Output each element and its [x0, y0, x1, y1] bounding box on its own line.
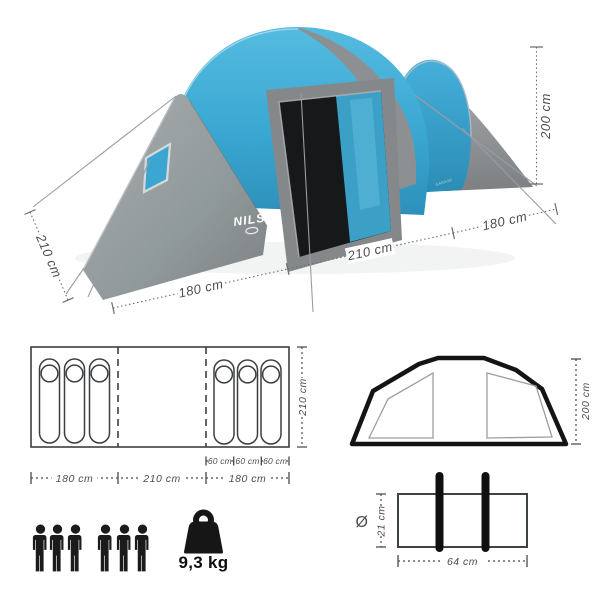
photo-dim-front-right: 180 cm: [451, 201, 558, 241]
pack-bag-outline: [398, 494, 527, 547]
plan-dim-beds: 60 cm 60 cm 60 cm: [206, 455, 289, 466]
person-icon: [33, 524, 47, 571]
sleeping-bag-icon: [65, 359, 85, 443]
sleeping-bag-icon: [238, 360, 258, 444]
guy-rope: [66, 268, 84, 294]
capacity-row: 9,3 kg: [33, 513, 229, 573]
sleeping-bag-icon: [90, 359, 110, 443]
photo-dim-height-label: 200 cm: [538, 93, 553, 140]
plan-dim-bed-label: 60 cm: [235, 456, 259, 466]
photo-dim-height: 200 cm: [530, 47, 553, 184]
photo-dim-front-left-label: 180 cm: [177, 276, 225, 301]
photo-dim-front-right-label: 180 cm: [481, 209, 529, 234]
sleeping-bag-icon: [261, 360, 281, 444]
pack-bag-strap: [436, 472, 444, 552]
person-icon: [50, 524, 64, 571]
person-icon: [98, 524, 112, 571]
plan-dim-depth-label: 210 cm: [297, 378, 309, 416]
bag-dim-diameter-label: 21 cm: [376, 505, 388, 537]
tent-photo: NILS ® GARAGE 200 cm 210 cm: [23, 27, 558, 316]
plan-dim-bed-label: 60 cm: [263, 456, 287, 466]
plan-dim-width-label: 180 cm: [229, 473, 266, 485]
photo-dim-side-label: 210 cm: [33, 231, 65, 280]
front-view-dim-height-label: 200 cm: [580, 382, 592, 420]
plan-dim-widths: 180 cm 210 cm 180 cm: [31, 471, 289, 485]
weight-label: 9,3 kg: [179, 553, 229, 572]
person-icon: [135, 524, 149, 571]
diagram-svg: NILS ® GARAGE 200 cm 210 cm: [0, 0, 600, 600]
product-dimension-sheet: NILS ® GARAGE 200 cm 210 cm: [0, 0, 600, 600]
bag-dim-length-label: 64 cm: [447, 556, 478, 568]
sleeping-bag-icon: [214, 360, 234, 444]
front-view-dim-height: 200 cm: [571, 359, 592, 444]
bag-dim-length: 64 cm: [398, 554, 527, 568]
front-view-outline: [352, 358, 566, 444]
bag-dim-diameter: Ø 21 cm: [356, 494, 388, 547]
front-view: 200 cm: [352, 358, 592, 444]
plan-dim-depth: 210 cm: [296, 347, 309, 447]
bag-diameter-symbol: Ø: [356, 514, 369, 531]
person-icon: [68, 524, 82, 571]
sleeping-bag-icon: [40, 359, 60, 443]
plan-dim-width-label: 180 cm: [56, 473, 93, 485]
floor-plan: 210 cm 60 cm 60 cm 60 cm 180 cm 210 cm 1…: [31, 347, 309, 485]
photo-dim-side: 210 cm: [23, 209, 76, 303]
pack-bag-strap: [482, 472, 490, 552]
person-icon: [117, 524, 131, 571]
pack-bag: Ø 21 cm 64 cm: [356, 472, 527, 568]
weight-icon: [186, 513, 222, 553]
brand-logo-reg: ®: [267, 209, 272, 216]
plan-dim-bed-label: 60 cm: [208, 456, 232, 466]
plan-dim-width-label: 210 cm: [142, 473, 180, 485]
